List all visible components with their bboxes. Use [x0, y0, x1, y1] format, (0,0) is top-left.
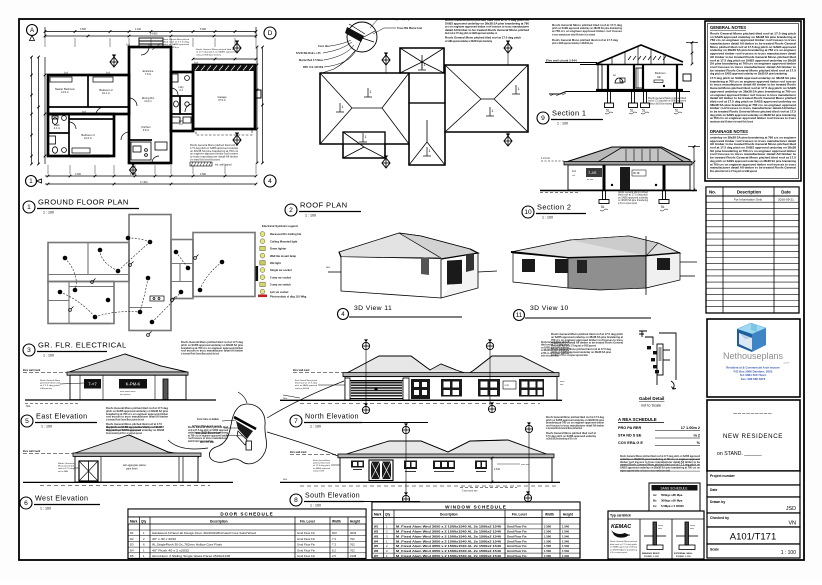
svg-text:to be treated Roofs General Mo: to be treated Roofs General Mono pitched	[190, 159, 220, 162]
svg-text:Qty: Qty	[385, 513, 391, 517]
svg-text:W_SingleFlush 30-2x_762mm Hol: W_SingleFlush 30-2x_762mm Hollow Core Fl…	[152, 543, 223, 547]
svg-text:Single sw socket: Single sw socket	[270, 268, 292, 272]
svg-text:Down lighter: Down lighter	[270, 247, 286, 251]
svg-text:Qty: Qty	[141, 519, 147, 523]
svg-text:Dbl light: Dbl light	[270, 261, 281, 265]
svg-text:Roofs General Mono pitched: Roofs General Mono pitched	[610, 540, 638, 543]
svg-text:1 540: 1 540	[562, 544, 569, 548]
svg-text:DOOR SCHEDULE: DOOR SCHEDULE	[220, 511, 273, 516]
svg-text:1 540: 1 540	[562, 554, 569, 558]
svg-text:2016-09-21: 2016-09-21	[778, 198, 794, 202]
svg-text:Elev wall mark: Elev wall mark	[290, 451, 307, 454]
svg-text:Electrical Symbols Legend: Electrical Symbols Legend	[262, 224, 298, 228]
svg-text:VN: VN	[789, 521, 797, 527]
svg-text:Ceiling Mounted light: Ceiling Mounted light	[270, 239, 297, 243]
svg-text:EXTERNAL WALL: EXTERNAL WALL	[674, 552, 693, 555]
svg-text:xxxx: xxxx	[690, 528, 694, 530]
svg-text:1 : 100: 1 : 100	[310, 425, 321, 429]
svg-text:.com: .com	[783, 361, 790, 365]
svg-text:1: 1	[518, 87, 520, 91]
svg-text:Width: Width	[332, 519, 341, 523]
svg-text:on STAND. ______: on STAND. ______	[717, 451, 762, 457]
svg-text:Elev wall chunk 2 644: Elev wall chunk 2 644	[546, 59, 577, 63]
svg-text:DPC U.S. 045 Blk: DPC U.S. 045 Blk	[303, 66, 324, 69]
svg-text:Bx: Bx	[653, 499, 657, 503]
svg-text:pitched tiled roof: pitched tiled roof	[313, 462, 330, 465]
svg-text:pitched tiled roof: pitched tiled roof	[40, 382, 60, 385]
svg-text:7.3: 7.3	[332, 537, 336, 541]
svg-text:7-4S: 7-4S	[588, 170, 597, 175]
svg-text:on SABS approved underlay: on SABS approved underlay	[40, 387, 52, 390]
svg-text:Roofs General Mono pitched: Roofs General Mono pitched	[618, 191, 649, 194]
svg-text:xxxxx: xxxxx	[658, 525, 663, 527]
svg-text:b.d: b.d	[126, 43, 130, 47]
svg-text:Grnd Floor Fin: Grnd Floor Fin	[507, 534, 527, 538]
svg-text:Date: Date	[781, 190, 791, 195]
svg-text:10.1 m: 10.1 m	[102, 92, 110, 95]
svg-text:D1: D1	[130, 531, 134, 535]
svg-text:on 38x38 SA pine brandering: on 38x38 SA pine brandering	[610, 548, 638, 551]
svg-text:3 500: 3 500	[80, 28, 87, 31]
svg-text:2.2: 2.2	[179, 123, 183, 126]
svg-text:7-×7: 7-×7	[88, 382, 97, 387]
svg-text:ROOF PLAN: ROOF PLAN	[300, 201, 347, 210]
svg-text:pitch on SABS approved underla: pitch on SABS approved underlay on 38x38…	[552, 41, 593, 45]
svg-text:14 800: 14 800	[150, 33, 158, 36]
svg-text:813: 813	[332, 531, 337, 535]
svg-text:2: 2	[289, 207, 293, 214]
svg-text:1 500: 1 500	[544, 544, 551, 548]
svg-text:W5: W5	[374, 544, 379, 548]
svg-text:1: 1	[365, 135, 367, 139]
svg-text:Description: Description	[210, 519, 228, 523]
svg-text:Trace Blk Mortar bnd: Trace Blk Mortar bnd	[397, 27, 422, 30]
svg-text:3D View 11: 3D View 11	[354, 305, 392, 312]
svg-text:5.5Mpa x 5 30000: 5.5Mpa x 5 30000	[661, 504, 684, 508]
svg-text:1 500: 1 500	[544, 525, 551, 529]
svg-text:Roofs General Mono: Roofs General Mono	[313, 459, 331, 462]
svg-text:on SABS approved underlay on 3: on SABS approved underlay on 38x38 SA pi…	[445, 39, 492, 43]
svg-text:on 38x38 SA pine brandering: on 38x38 SA pine brandering	[618, 199, 649, 202]
svg-text:NGL: NGL	[283, 479, 288, 481]
svg-text:3.1: 3.1	[179, 89, 183, 92]
svg-text:10.6 m: 10.6 m	[84, 137, 92, 140]
svg-text:5L: 5L	[675, 109, 679, 113]
svg-text:M_Fixed Alum Wnd 3050 x 2 1500: M_Fixed Alum Wnd 3050 x 2 1500x1540 AL 2…	[396, 530, 502, 534]
svg-text:tiled roof at 17.5 deg pitch: tiled roof at 17.5 deg pitch	[618, 194, 649, 197]
svg-text:PRO PA RER: PRO PA RER	[618, 426, 641, 430]
svg-text:10: 10	[524, 209, 532, 216]
svg-text:Mortar Bed 1:5 Mass: Mortar Bed 1:5 Mass	[299, 59, 324, 62]
svg-text:Grnd Floor Fin: Grnd Floor Fin	[297, 543, 315, 547]
svg-text:1: 1	[27, 204, 31, 211]
svg-text:3 xxx xxxx xxx: 3 xxx xxxx xxx	[462, 490, 478, 493]
svg-text:4: 4	[268, 178, 272, 185]
svg-text:1: 1	[424, 63, 426, 67]
svg-text:xxxx: xxxx	[658, 528, 662, 530]
svg-text:1 540: 1 540	[562, 534, 569, 538]
svg-text:GROUND FLOOR PLAN: GROUND FLOOR PLAN	[38, 198, 129, 207]
svg-text:ext. wall legend: ext. wall legend	[215, 164, 232, 167]
svg-text:1 500: 1 500	[544, 539, 551, 543]
svg-text:1: 1	[370, 90, 372, 94]
svg-text:West Elevation: West Elevation	[35, 494, 88, 503]
svg-text:pitch on SABS approved: pitch on SABS approved	[295, 384, 318, 387]
svg-text:Height: Height	[563, 513, 574, 517]
svg-text:Project number: Project number	[710, 474, 736, 478]
svg-text:Roofs General: Roofs General	[58, 462, 75, 465]
svg-text:57x45 Blk Brdrs c.45: 57x45 Blk Brdrs c.45	[296, 52, 321, 55]
svg-text:M_Fixed Alum Wnd 3050 x 2 1500: M_Fixed Alum Wnd 3050 x 2 1500x1540 AL 2…	[396, 525, 502, 529]
svg-text:5L: 5L	[601, 205, 605, 209]
svg-text:Aluminium 4 Sliding Single Gla: Aluminium 4 Sliding Single Glass Panel 2…	[152, 554, 231, 558]
svg-text:tiled roof at 17.5 deg: tiled roof at 17.5 deg	[163, 41, 190, 44]
svg-text:D4: D4	[130, 548, 134, 552]
svg-text:on 38x38 SA pine brandering at: on 38x38 SA pine brandering at 760 crs o…	[546, 438, 577, 441]
svg-text:North Elevation: North Elevation	[305, 414, 359, 421]
svg-text:b.d: b.d	[148, 43, 152, 47]
svg-text:Photovoltaic sl dbg 110 Wkg: Photovoltaic sl dbg 110 Wkg	[270, 294, 307, 298]
svg-text:Grnd Floor Fin: Grnd Floor Fin	[297, 537, 315, 541]
svg-text:Conc tiles: Conc tiles	[318, 45, 331, 48]
svg-text:6: 6	[24, 500, 28, 507]
svg-text:1 : 100: 1 : 100	[310, 504, 321, 508]
svg-text:to truss manufacturer detail A: to truss manufacturer detail All timber …	[552, 32, 595, 36]
svg-text:_________: _________	[732, 408, 772, 414]
svg-text:Wall lite mount lamp: Wall lite mount lamp	[270, 254, 296, 258]
svg-text:11.2 m: 11.2 m	[144, 100, 151, 103]
svg-text:Elev wall mark: Elev wall mark	[23, 450, 41, 453]
svg-text:762: 762	[350, 543, 355, 547]
svg-text:brandering at 760 crs on engin: brandering at 760 crs on engineer approv…	[551, 354, 588, 357]
svg-text:11: 11	[516, 312, 523, 319]
svg-text:1: 1	[429, 149, 431, 153]
svg-text:1 : 100: 1 : 100	[41, 425, 52, 429]
svg-text:Date: Date	[710, 488, 717, 492]
svg-text:Roofs General Mono pitched til: Roofs General Mono pitched tiled roof	[196, 48, 236, 51]
svg-text:762: 762	[350, 537, 355, 541]
svg-text:South Elevation: South Elevation	[305, 493, 360, 500]
svg-text:2 644: 2 644	[494, 468, 501, 471]
svg-text:Bedroom: Bedroom	[655, 71, 666, 75]
svg-text:Description: Description	[737, 190, 761, 195]
svg-text:W1: W1	[374, 525, 379, 529]
svg-text:roof at 17.5 deg pitch on SABS: roof at 17.5 deg pitch on SABS approved	[648, 100, 687, 103]
svg-text:Hardwood 4 Panel ab Design Doo: Hardwood 4 Panel ab Design Door 40x2032x…	[152, 531, 257, 535]
svg-text:1 : 100: 1 : 100	[43, 211, 54, 215]
svg-text:NGL: NGL	[26, 406, 31, 408]
svg-text:2032: 2032	[350, 531, 357, 535]
svg-text:5L: 5L	[661, 205, 665, 209]
svg-text:xxx xxxxxx: xxx xxxxxx	[120, 394, 131, 396]
svg-text:7.9 m: 7.9 m	[145, 73, 151, 76]
svg-text:on SABS approved underlay: on SABS approved underlay	[618, 196, 649, 199]
svg-text:GENERAL NOTES: GENERAL NOTES	[710, 25, 746, 30]
svg-text:GR. FLR. ELECTRICAL: GR. FLR. ELECTRICAL	[38, 341, 127, 350]
svg-text:NGL: NGL	[283, 398, 288, 400]
svg-text:A REA SCHEDULE: A REA SCHEDULE	[618, 417, 657, 422]
svg-text:tiled roof at 17.5 deg: tiled roof at 17.5 deg	[295, 382, 318, 385]
svg-text:Description: Description	[440, 513, 458, 517]
svg-text:W7: W7	[374, 554, 379, 558]
svg-text:1 : 100: 1 : 100	[781, 550, 797, 556]
svg-text:1 500: 1 500	[544, 554, 551, 558]
svg-text:9.8 m: 9.8 m	[143, 129, 149, 132]
svg-text:Grnd Floor Fin: Grnd Floor Fin	[297, 554, 315, 558]
svg-text:b.d: b.d	[106, 71, 110, 75]
svg-text:5L: 5L	[630, 109, 634, 113]
svg-text:Grnd Floor Fin: Grnd Floor Fin	[507, 544, 527, 548]
svg-text:Section 1: Section 1	[552, 109, 586, 118]
svg-text:W2: W2	[374, 530, 379, 534]
svg-text:Elev wall mark: Elev wall mark	[293, 369, 310, 372]
svg-text:detail All timber to be treate: detail All timber to be treated Roofs	[188, 440, 213, 443]
svg-text:For Information Only: For Information Only	[734, 198, 763, 202]
svg-text:JSD: JSD	[786, 506, 796, 512]
svg-text:Checked by: Checked by	[710, 516, 729, 520]
svg-text:Fax: 086 580 0973: Fax: 086 580 0973	[741, 377, 766, 381]
svg-text:NGL: NGL	[326, 267, 331, 269]
svg-text:underlay on 38x38 SA pine bran: underlay on 38x38 SA pine brandering	[648, 102, 672, 105]
svg-text:M_Fixed Alum Wnd 3050 x 2 1500: M_Fixed Alum Wnd 3050 x 2 1500x1540 AL 2…	[396, 549, 502, 553]
svg-text:M_Fixed Alum Wnd 3050 x 2 1500: M_Fixed Alum Wnd 3050 x 2 1500x1540 AL 2…	[396, 539, 502, 543]
svg-text:at 760 crs on engineer approve: at 760 crs on engineer approved	[610, 551, 627, 554]
svg-text:Gabel Detail: Gabel Detail	[639, 396, 664, 401]
svg-text:Height: Height	[350, 519, 361, 523]
svg-text:D: D	[268, 30, 273, 37]
svg-text:14.9 m: 14.9 m	[61, 91, 69, 94]
svg-text:m 2: m 2	[693, 434, 700, 438]
svg-text:underlay on 38x38 SA pine bran: underlay on 38x38 SA pine brandering	[196, 53, 222, 56]
svg-text:Roofs General Mono pitched: Roofs General Mono pitched	[295, 379, 318, 382]
svg-text:2.5: 2.5	[332, 554, 336, 558]
svg-text:Grnd Floor Fin: Grnd Floor Fin	[507, 525, 527, 529]
svg-text:9: 9	[541, 115, 545, 122]
svg-text:1 500: 1 500	[544, 530, 551, 534]
svg-text:on SABS approved underlay: on SABS approved underlay	[610, 546, 638, 549]
svg-text:500kgs x85 Mpa: 500kgs x85 Mpa	[661, 493, 683, 497]
svg-text:17 1.00m 2: 17 1.00m 2	[681, 426, 700, 430]
svg-text:4 500: 4 500	[200, 173, 207, 176]
svg-text:at 17.5 deg pitch: at 17.5 deg pitch	[40, 384, 61, 387]
svg-text:xxxxx: xxxxx	[690, 525, 695, 527]
svg-text:3D View 10: 3D View 10	[530, 305, 569, 312]
svg-text:5 900: 5 900	[200, 28, 207, 31]
svg-text:FOUND. 1:100: FOUND. 1:100	[644, 556, 659, 558]
svg-text:b.d: b.d	[64, 71, 68, 75]
svg-text:at 760 crs on engineer approve: at 760 crs on engineer approved	[618, 202, 637, 205]
svg-text:paint finish: paint finish	[126, 467, 138, 470]
svg-text:NEW RESIDENCE: NEW RESIDENCE	[723, 433, 783, 440]
svg-text:M_Fixed Alum Wnd 3050 x 2 1500: M_Fixed Alum Wnd 3050 x 2 1500x1540 AL 2…	[396, 554, 502, 558]
svg-text:Grnd Floor Fin: Grnd Floor Fin	[297, 531, 315, 535]
svg-text:Typ cal Brick: Typ cal Brick	[610, 514, 631, 518]
svg-text:Width: Width	[545, 513, 554, 517]
svg-text:SANS SCHEDULE: SANS SCHEDULE	[661, 486, 688, 490]
svg-text:D5: D5	[130, 554, 134, 558]
svg-text:4.1 m: 4.1 m	[54, 127, 60, 130]
svg-text:roof at 17.5 deg: roof at 17.5 deg	[58, 467, 75, 470]
svg-text:1 : 100: 1 : 100	[40, 507, 51, 511]
svg-text:W4: W4	[374, 539, 379, 543]
svg-text:K-PM-K: K-PM-K	[126, 382, 141, 387]
svg-text:BEARING BRICK: BEARING BRICK	[642, 552, 660, 555]
svg-text:5L: 5L	[606, 109, 610, 113]
svg-text:xx xxx: xx xxx	[587, 179, 594, 181]
svg-text:3D 4B: 3D 4B	[633, 173, 640, 175]
svg-text:underlay on 38x38 SA: underlay on 38x38 SA	[295, 387, 309, 390]
svg-text:1 500: 1 500	[544, 534, 551, 538]
svg-text:Grnd Floor Fin: Grnd Floor Fin	[507, 554, 527, 558]
svg-text:FOUND. 1:100: FOUND. 1:100	[676, 556, 691, 558]
svg-text:1: 1	[342, 105, 344, 109]
svg-text:Ax: Ax	[653, 493, 657, 497]
svg-text:3 200: 3 200	[75, 173, 82, 176]
svg-text:Drawn by: Drawn by	[710, 500, 725, 504]
svg-text:hall: hall	[657, 76, 661, 79]
svg-text:1 540: 1 540	[562, 530, 569, 534]
svg-text:Mono pitched tiled roof at 17.: Mono pitched tiled roof at 17.5 deg pitc…	[710, 169, 757, 173]
svg-text:Conc tiles on batten: Conc tiles on batten	[197, 418, 220, 421]
svg-text:1 : 100: 1 : 100	[305, 214, 316, 218]
svg-text:Mark: Mark	[130, 519, 138, 523]
svg-text:4 100: 4 100	[135, 28, 142, 31]
svg-text:A101/T171: A101/T171	[730, 532, 776, 543]
svg-text:M_Fixed Alum Wnd 3050 x 2 1500: M_Fixed Alum Wnd 3050 x 2 1500x1540 AL 2…	[396, 534, 502, 538]
svg-text:D2: D2	[130, 537, 134, 541]
svg-text:manufacturer detail All timber: manufacturer detail All timber to be tre…	[710, 120, 753, 124]
svg-text:M_Fixed Alum Wnd 3050 x 2 1500: M_Fixed Alum Wnd 3050 x 2 1500x1540 AL 2…	[396, 544, 502, 548]
svg-text:1 500: 1 500	[544, 549, 551, 553]
svg-text:3: 3	[27, 347, 31, 354]
svg-text:W6: W6	[374, 549, 379, 553]
svg-text:4 x4 rod: 4 x4 rod	[541, 157, 550, 160]
svg-text:300kgs x55 Mpa: 300kgs x55 Mpa	[661, 499, 683, 503]
svg-text:tiled roof at 17.5 deg pitch: tiled roof at 17.5 deg pitch	[610, 543, 638, 546]
svg-text:5: 5	[25, 418, 29, 425]
svg-text:Roofs General Mono pitched til: Roofs General Mono pitched tiled	[648, 97, 687, 100]
svg-text:East Elevation: East Elevation	[36, 412, 88, 421]
svg-text:7: 7	[294, 418, 298, 425]
svg-text:Fin. Level: Fin. Level	[512, 513, 527, 517]
svg-text:Ridge capping: Ridge capping	[392, 18, 410, 21]
svg-text:STA ND S EE: STA ND S EE	[618, 434, 642, 438]
svg-text:to be treated Roofs General Mo: to be treated Roofs General Mono pitched…	[181, 353, 219, 356]
svg-text:on SABS approved: on SABS approved	[313, 467, 331, 470]
svg-text:6.2: 6.2	[332, 548, 336, 552]
svg-text:Fin. Level: Fin. Level	[300, 519, 315, 523]
svg-text:Recessed Dn Ceiling lite: Recessed Dn Ceiling lite	[270, 232, 302, 236]
svg-text:COV ERA.G E: COV ERA.G E	[618, 441, 643, 445]
svg-text:5L: 5L	[642, 109, 646, 113]
svg-text:Nethouseplans: Nethouseplans	[723, 351, 784, 361]
svg-text:1 : 100: 1 : 100	[542, 216, 553, 220]
svg-text:17 300: 17 300	[140, 181, 148, 184]
svg-text:KEMAC: KEMAC	[611, 524, 632, 530]
svg-text:No.: No.	[709, 190, 716, 195]
svg-text:xxxx xxxxx xxxx: xxxx xxxxx xxxx	[120, 391, 136, 393]
svg-text:Roofs General Mono pitched: Roofs General Mono pitched	[163, 38, 190, 41]
svg-text:to be treated Roofs General Mo: to be treated Roofs General Mono pitched…	[546, 427, 582, 430]
svg-text:underlay on 38x38: underlay on 38x38	[313, 469, 324, 472]
svg-text:1 540: 1 540	[562, 525, 569, 529]
svg-text:DRAINAGE NOTES: DRAINAGE NOTES	[710, 129, 748, 134]
svg-text:Mono pitched tiled: Mono pitched tiled	[58, 465, 75, 468]
svg-text:Scale: Scale	[710, 548, 719, 552]
svg-text:8: 8	[294, 497, 298, 504]
svg-text:Cx: Cx	[653, 504, 657, 508]
svg-text:Grnd Floor Fin: Grnd Floor Fin	[507, 539, 527, 543]
svg-text:4x4: 4x4	[572, 170, 577, 173]
svg-text:Elev wall mark: Elev wall mark	[23, 369, 41, 372]
svg-text:37.6 m: 37.6 m	[218, 99, 226, 102]
svg-text:2138: 2138	[350, 554, 357, 558]
svg-text:Grnd Floor Fin: Grnd Floor Fin	[507, 549, 527, 553]
svg-text:Section 2: Section 2	[537, 203, 571, 212]
svg-text:1ph sw socket: 1ph sw socket	[270, 290, 288, 294]
svg-text:WINDOW SCHEDULE: WINDOW SCHEDULE	[445, 504, 507, 509]
svg-text:Mark: Mark	[374, 513, 382, 517]
svg-text:SA pine brandering at 760 crs: SA pine brandering at 760 crs on enginee…	[106, 432, 142, 435]
svg-text:at 17.5 deg pitch on SABS appr: at 17.5 deg pitch on SABS approved	[196, 51, 237, 54]
svg-text:Grnd Floor Fin: Grnd Floor Fin	[297, 548, 315, 552]
svg-text:1 : 100: 1 : 100	[557, 122, 568, 126]
svg-text:7.3: 7.3	[332, 543, 336, 547]
svg-text:1 540: 1 540	[562, 539, 569, 543]
svg-text:Roofs General Mono: Roofs General Mono	[40, 379, 61, 382]
svg-text:40" x 40 x 2032: 40" x 40 x 2032	[152, 537, 177, 541]
svg-text:b.d: b.d	[194, 61, 198, 65]
svg-text:to be treated Roofs General Mo: to be treated Roofs General Mono pitched…	[106, 419, 144, 422]
svg-text:at 17.5 deg pitch: at 17.5 deg pitch	[313, 464, 331, 467]
svg-text:1 540: 1 540	[562, 549, 569, 553]
svg-text:b.d: b.d	[82, 110, 86, 114]
svg-text:3 way sw switch: 3 way sw switch	[270, 283, 291, 287]
svg-text:762: 762	[350, 548, 355, 552]
svg-text:Grnd Floor Fin: Grnd Floor Fin	[507, 530, 527, 534]
svg-text:pitch on SABS: pitch on SABS	[58, 470, 68, 473]
svg-text:not to Scale: not to Scale	[641, 404, 661, 408]
svg-text:2 way sw socket: 2 way sw socket	[270, 275, 291, 279]
svg-text:1: 1	[492, 109, 494, 113]
svg-text:1 : 100: 1 : 100	[43, 354, 54, 358]
svg-text:W3: W3	[374, 534, 379, 538]
svg-text:40" Flush 40 x 2 x2032: 40" Flush 40 x 2 x2032	[152, 548, 190, 552]
svg-text:D3: D3	[130, 543, 134, 547]
